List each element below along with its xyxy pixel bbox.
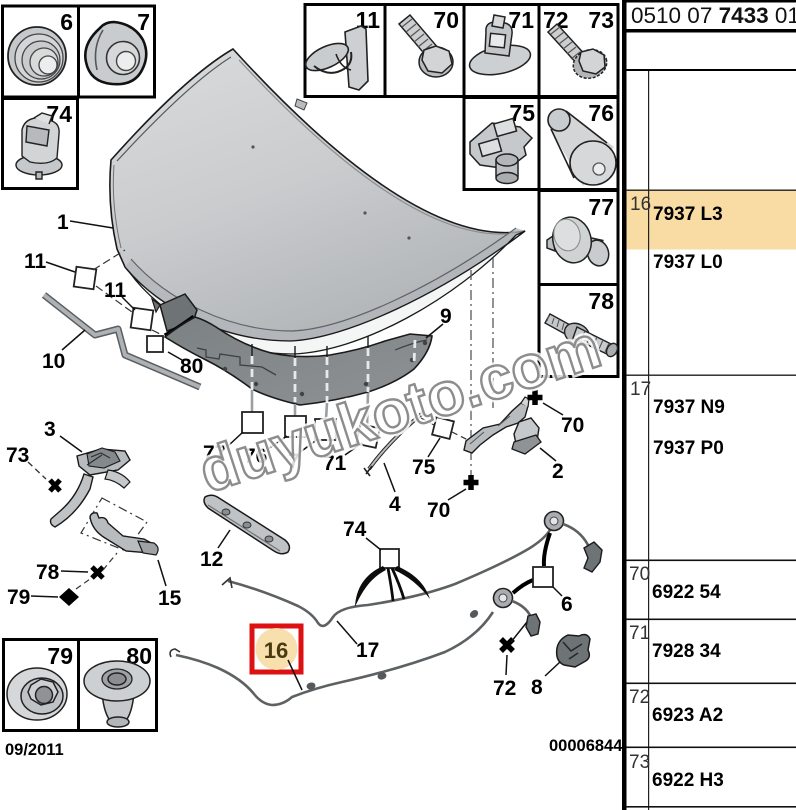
svg-text:6: 6 (60, 9, 73, 35)
svg-text:78: 78 (588, 288, 614, 314)
svg-text:6922 H3: 6922 H3 (652, 770, 724, 791)
svg-text:12: 12 (200, 548, 223, 571)
svg-text:76: 76 (588, 100, 614, 126)
svg-text:70: 70 (427, 499, 450, 522)
svg-text:77: 77 (588, 194, 614, 220)
svg-text:7937 L3: 7937 L3 (653, 204, 723, 225)
svg-text:70: 70 (433, 7, 459, 33)
svg-text:3: 3 (44, 418, 56, 441)
svg-text:79: 79 (47, 643, 73, 669)
svg-text:73: 73 (6, 444, 29, 467)
svg-text:6922 54: 6922 54 (652, 582, 721, 603)
svg-text:7937 N9: 7937 N9 (653, 397, 725, 418)
svg-text:2: 2 (552, 460, 564, 483)
svg-text:73: 73 (629, 752, 650, 773)
svg-text:71: 71 (629, 623, 650, 644)
svg-text:11: 11 (104, 279, 127, 302)
svg-text:7: 7 (137, 9, 150, 35)
svg-text:17: 17 (630, 379, 651, 400)
svg-text:16: 16 (264, 638, 288, 663)
svg-text:75: 75 (412, 456, 436, 479)
svg-text:7937 L0: 7937 L0 (653, 252, 723, 273)
svg-text:17: 17 (356, 639, 379, 662)
svg-text:80: 80 (180, 355, 203, 378)
svg-text:78: 78 (36, 561, 60, 584)
svg-text:79: 79 (7, 586, 30, 609)
svg-text:1: 1 (57, 211, 69, 234)
svg-text:00006844: 00006844 (549, 737, 623, 755)
svg-text:16: 16 (630, 194, 651, 215)
svg-text:72: 72 (493, 677, 516, 700)
svg-text:6: 6 (561, 593, 573, 616)
svg-text:74: 74 (343, 518, 367, 541)
svg-text:10: 10 (42, 350, 65, 373)
svg-text:15: 15 (158, 587, 182, 610)
svg-text:70: 70 (561, 414, 584, 437)
svg-text:11: 11 (24, 250, 47, 273)
svg-text:8: 8 (531, 676, 543, 699)
svg-text:73: 73 (588, 7, 614, 33)
svg-text:72: 72 (629, 687, 650, 708)
svg-text:4: 4 (389, 493, 401, 516)
svg-text:9: 9 (440, 305, 452, 328)
svg-text:7937 P0: 7937 P0 (653, 438, 724, 459)
svg-text:6923 A2: 6923 A2 (652, 705, 723, 726)
svg-text:7928 34: 7928 34 (652, 641, 721, 662)
svg-text:70: 70 (629, 564, 650, 585)
svg-text:09/2011: 09/2011 (5, 741, 64, 759)
svg-text:0510 07 7433 01/: 0510 07 7433 01/ (631, 3, 796, 28)
